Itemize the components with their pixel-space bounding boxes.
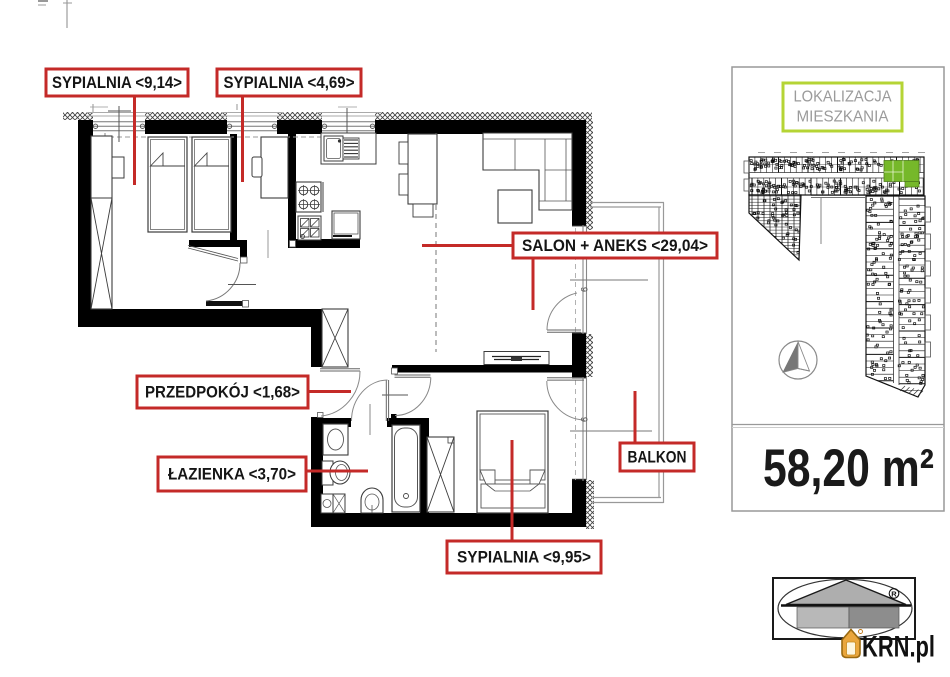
svg-text:9: 9: [579, 287, 589, 292]
svg-text:SYPIALNIA <9,14>: SYPIALNIA <9,14>: [52, 73, 182, 92]
svg-text:SYPIALNIA <9,95>: SYPIALNIA <9,95>: [457, 548, 591, 567]
svg-text:BALKON: BALKON: [628, 448, 687, 467]
svg-text:58,20 m²: 58,20 m²: [763, 439, 934, 498]
svg-text:LOKALIZACJA: LOKALIZACJA: [794, 89, 893, 106]
svg-text:R: R: [891, 590, 897, 599]
svg-text:ŁAZIENKA <3,70>: ŁAZIENKA <3,70>: [168, 465, 296, 484]
svg-text:KRN.pl: KRN.pl: [862, 631, 935, 664]
svg-text:SYPIALNIA <4,69>: SYPIALNIA <4,69>: [224, 73, 355, 92]
svg-text:SALON + ANEKS <29,04>: SALON + ANEKS <29,04>: [522, 236, 708, 255]
svg-text:PRZEDPOKÓJ <1,68>: PRZEDPOKÓJ <1,68>: [145, 383, 300, 402]
svg-text:MIESZKANIA: MIESZKANIA: [797, 109, 890, 126]
svg-text:9: 9: [579, 417, 589, 422]
